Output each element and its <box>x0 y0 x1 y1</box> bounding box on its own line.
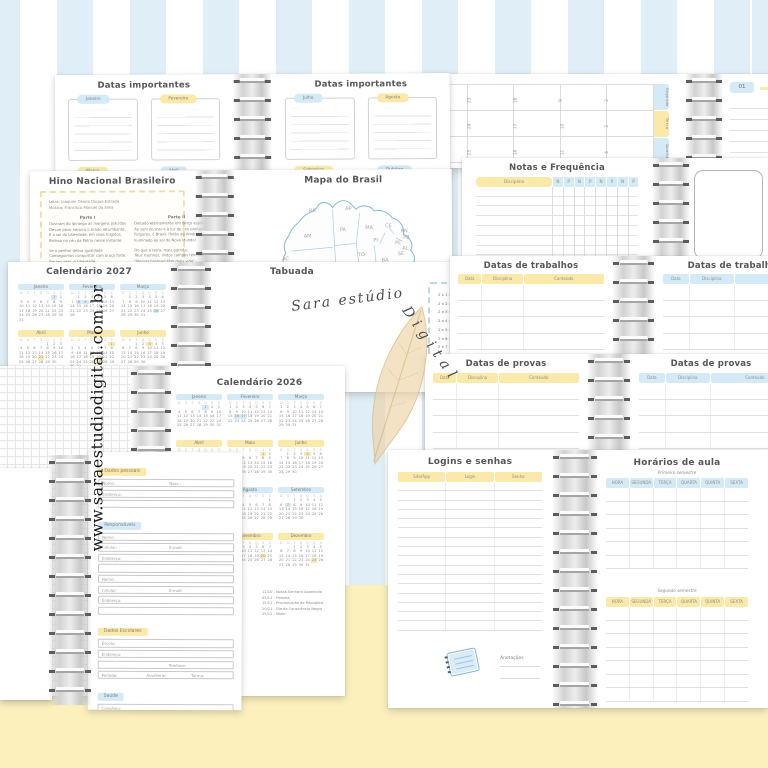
sheet-monthly-view: 3023169231241710312518114 SegundaTerçaQu… <box>412 74 768 168</box>
month-label: Agosto <box>376 93 409 102</box>
mini-calendar: JaneiroDSTQQSS12345678910111213141516171… <box>176 394 222 432</box>
state-label: AP <box>345 206 351 212</box>
spiral-binding <box>685 74 723 168</box>
table-cell <box>606 206 617 216</box>
field-label: Nome: <box>99 534 233 541</box>
table-cell <box>630 634 654 647</box>
table-cell <box>690 334 735 350</box>
table-cell <box>630 648 654 661</box>
day-cell <box>247 474 254 479</box>
field-label: Endereço: <box>99 651 233 658</box>
page-title: Datas de trabalhos <box>450 261 612 271</box>
table-cell <box>701 556 725 569</box>
mini-calendar: DezembroDSTQQSS1234567891011121314151617… <box>278 533 324 571</box>
table-cell <box>725 675 748 688</box>
table-cell <box>574 197 585 207</box>
month-boxes: JaneiroFevereiroMarçoAbril <box>68 98 221 179</box>
blank-page-left <box>0 468 52 700</box>
state-label: PI <box>373 238 378 244</box>
day-grid: 1234567891011121314151617181920212223242… <box>18 295 64 322</box>
table-cell <box>446 519 494 527</box>
table-row <box>663 334 768 351</box>
semester-label: Segundo semestre <box>606 588 748 593</box>
table-cell <box>584 216 595 226</box>
field-row: Endereço: <box>98 650 234 659</box>
month-header: Março <box>278 394 324 400</box>
day-cell <box>285 567 292 572</box>
ruled-lines <box>291 108 349 154</box>
table-cell <box>735 334 768 350</box>
weekday-tab: Segunda <box>654 84 669 110</box>
calendar-cell: 3 <box>607 111 654 137</box>
table-cell <box>552 236 563 246</box>
table-cell <box>482 317 523 333</box>
month-header: Março <box>120 284 166 290</box>
assignments-table: DataDisciplinaConteúdo <box>663 274 768 350</box>
table-cell <box>446 510 494 518</box>
table-cell <box>574 236 585 246</box>
table-row <box>398 482 542 491</box>
table-cell <box>495 612 542 620</box>
table-cell <box>476 197 552 207</box>
table-cell <box>495 491 542 499</box>
day-cell <box>247 567 254 572</box>
spiral-binding <box>587 354 631 462</box>
table-cell <box>574 187 585 197</box>
table-cell <box>398 519 446 527</box>
table-cell <box>711 416 768 432</box>
field-label: E-mail: <box>166 587 233 593</box>
table-cell <box>654 607 678 620</box>
table-cell <box>735 284 768 300</box>
month-header: Abril <box>18 330 64 336</box>
day-cell <box>209 428 216 433</box>
calendar-cell: 24 <box>468 111 515 137</box>
table-cell <box>398 612 446 620</box>
table-cell <box>433 433 457 449</box>
table-cell <box>499 383 579 399</box>
table-cell <box>457 433 498 449</box>
table-cell <box>446 482 494 490</box>
sheet-dados-pessoais: Dados pessoaisNome:Nasc.:Endereço:Respon… <box>88 452 243 711</box>
table-cell <box>495 575 542 583</box>
ruled-lines <box>156 109 214 155</box>
table-row <box>398 584 542 593</box>
page-horarios: Horários de aula Primeiro semestre HORAS… <box>598 450 768 708</box>
day-cell <box>285 521 292 526</box>
page-title: Horários de aula <box>598 458 756 468</box>
column-header: Disciplina <box>690 274 734 284</box>
table-row <box>639 383 768 400</box>
table-cell <box>666 400 711 416</box>
table-cell <box>398 575 446 583</box>
table-cell <box>606 688 630 701</box>
table-cell <box>606 226 617 236</box>
table-row <box>606 515 748 529</box>
table-cell <box>701 648 725 661</box>
table-cell <box>630 529 654 542</box>
table-row <box>433 433 579 450</box>
table-cell <box>476 216 552 226</box>
table-cell <box>595 226 606 236</box>
field-label: Ano/Série: <box>143 672 188 678</box>
table-cell <box>725 661 748 674</box>
table-cell <box>563 216 574 226</box>
table-cell <box>677 502 701 515</box>
field-row: Período:Ano/Série:Turma: <box>98 671 234 680</box>
table-cell <box>606 246 617 256</box>
state-label: CE <box>385 223 392 229</box>
table-cell <box>398 556 446 564</box>
table-cell <box>654 675 678 688</box>
table-cell <box>606 675 630 688</box>
field-label: Celular: <box>99 544 166 550</box>
table-cell <box>725 529 748 542</box>
table-cell <box>524 301 604 317</box>
table-cell <box>666 383 711 399</box>
table-cell <box>446 584 494 592</box>
column-header: Conteúdo <box>711 373 768 383</box>
table-cell <box>552 197 563 207</box>
table-cell <box>398 538 446 546</box>
table-row <box>606 502 748 516</box>
day-cell <box>25 318 32 323</box>
day-cell <box>260 474 267 479</box>
day-cell <box>153 318 160 323</box>
field-row: Nome:Nasc.: <box>98 479 234 488</box>
table-row <box>606 556 748 570</box>
day-cell <box>317 474 324 479</box>
day-number: 25 <box>467 150 472 156</box>
column-header: P <box>563 177 574 187</box>
table-cell <box>584 226 595 236</box>
table-cell <box>677 675 701 688</box>
day-number: 10 <box>560 124 565 130</box>
day-number: 16 <box>513 98 518 104</box>
table-cell <box>630 688 654 701</box>
day-grid: 1234567891011121314151617181920212223242… <box>278 452 324 479</box>
table-cell <box>654 488 678 501</box>
table-cell <box>495 621 542 629</box>
day-number-badge: 01 <box>730 82 754 93</box>
table-cell <box>499 433 579 449</box>
spiral-binding <box>612 256 655 356</box>
weekday-tabs: SegundaTerçaQuarta <box>654 84 669 165</box>
table-cell <box>584 236 595 246</box>
day-grid: 1234567891011121314151617181920212223242… <box>278 405 324 432</box>
table-cell <box>677 488 701 501</box>
column-header: P <box>628 177 639 187</box>
table-row <box>639 400 768 417</box>
column-header: QUINTA <box>701 478 724 488</box>
table-cell <box>617 246 628 256</box>
month-header: Maio <box>227 440 273 446</box>
table-cell <box>711 400 768 416</box>
table-cell <box>677 688 701 701</box>
table-row <box>663 301 768 318</box>
table-cell <box>606 648 630 661</box>
table-cell <box>495 556 542 564</box>
day-cell <box>159 318 166 323</box>
table-cell <box>457 400 498 416</box>
table-cell <box>654 661 678 674</box>
table-cell <box>711 383 768 399</box>
field-label: Endereço: <box>99 555 233 562</box>
table-cell <box>666 433 711 449</box>
table-row <box>398 603 542 612</box>
anthem-line: Conseguimos conquistar com braço forte, <box>49 254 126 260</box>
table-cell <box>574 246 585 256</box>
section-label: Dados Escolares <box>98 628 148 636</box>
table-cell <box>725 607 748 620</box>
field-label: Nome: <box>99 576 233 583</box>
day-cell <box>311 474 318 479</box>
page-title: Tabuada <box>212 267 372 277</box>
day-cell <box>298 521 305 526</box>
day-cell <box>127 318 134 323</box>
field-label: Telefone: <box>166 662 233 668</box>
table-cell <box>677 542 701 555</box>
field-row <box>98 564 234 573</box>
table-cell <box>458 284 482 300</box>
table-cell <box>606 216 617 226</box>
table-cell <box>654 529 678 542</box>
monthly-calendar-grid: 3023169231241710312518114 <box>420 84 654 163</box>
table-row <box>458 334 604 351</box>
schedule-table-sem1: HORASEGUNDATERÇAQUARTAQUINTASEXTA <box>606 478 748 569</box>
day-grid: 1234567891011121314151617181920212223242… <box>227 405 273 432</box>
table-row <box>398 621 542 630</box>
table-cell <box>654 542 678 555</box>
column-header: N <box>617 177 628 187</box>
day-cell <box>196 428 203 433</box>
table-cell <box>630 515 654 528</box>
table-cell <box>617 226 628 236</box>
month-box: Julho <box>285 97 355 159</box>
notes-box <box>694 170 763 259</box>
day-cell <box>247 428 254 433</box>
ruled-lines <box>373 108 431 154</box>
month-header: Setembro <box>278 487 324 493</box>
day-cell <box>51 318 58 323</box>
table-cell <box>398 501 446 509</box>
table-row <box>606 688 748 702</box>
table-cell <box>398 491 446 499</box>
table-cell <box>446 528 494 536</box>
table-row <box>663 317 768 334</box>
field-label <box>99 565 233 572</box>
spiral-binding <box>233 74 273 178</box>
table-cell <box>725 634 748 647</box>
table-cell <box>630 488 654 501</box>
month-header: Junho <box>278 440 324 446</box>
page-title: Datas importantes <box>55 80 233 91</box>
table-cell <box>725 488 748 501</box>
day-number: 2 <box>605 99 610 102</box>
annotations-label: Anotações <box>500 656 524 661</box>
table-cell <box>690 301 735 317</box>
table-cell <box>574 226 585 236</box>
mini-calendar: JunhoDSTQQSS1234567891011121314151617181… <box>278 440 324 478</box>
calendar-cell: 10 <box>561 111 608 137</box>
table-row <box>398 510 542 519</box>
day-number: 11 <box>560 150 565 156</box>
day-cell <box>57 318 64 323</box>
month-label: Fevereiro <box>159 94 197 103</box>
table-cell <box>628 187 639 197</box>
table-cell <box>606 236 617 246</box>
table-cell <box>482 301 523 317</box>
day-cell <box>298 567 305 572</box>
table-cell <box>711 433 768 449</box>
table-cell <box>701 529 725 542</box>
table-cell <box>617 216 628 226</box>
month-box: Fevereiro <box>150 98 220 160</box>
table-row <box>398 538 542 547</box>
table-cell <box>663 301 690 317</box>
table-row <box>606 634 748 648</box>
field-row: Convênio: <box>98 703 234 710</box>
table-row <box>398 547 542 556</box>
mini-calendar: FevereiroDSTQQSS123456789101112131415161… <box>227 394 273 432</box>
column-header: Conteúdo <box>735 274 768 284</box>
column-header: N <box>595 177 606 187</box>
table-cell <box>595 187 606 197</box>
part-title: Parte I <box>49 215 126 220</box>
field-row: Nome: <box>98 533 234 542</box>
table-cell <box>654 556 678 569</box>
table-cell <box>639 416 666 432</box>
day-cell <box>108 318 115 323</box>
table-cell <box>552 187 563 197</box>
table-cell <box>725 556 748 569</box>
field-row: Endereço: <box>98 596 234 605</box>
table-cell <box>630 607 654 620</box>
watermark-site-url: www.saraestudiodigital.com.br <box>88 285 107 552</box>
table-cell <box>495 603 542 611</box>
field-row: Celular:E-mail: <box>98 585 234 594</box>
table-cell <box>563 246 574 256</box>
table-row <box>606 621 748 635</box>
table-cell <box>701 488 725 501</box>
field-label <box>99 608 233 615</box>
table-cell <box>701 621 725 634</box>
table-row <box>606 675 748 689</box>
table-cell <box>552 226 563 236</box>
day-cell <box>311 521 318 526</box>
column-header: HORA <box>606 597 629 607</box>
table-row <box>458 301 604 318</box>
day-number: 18 <box>513 150 518 156</box>
day-number: 3 <box>605 125 610 128</box>
table-cell <box>476 206 552 216</box>
page-title: Datas de provas <box>631 359 768 369</box>
table-cell <box>398 547 446 555</box>
table-cell <box>524 284 604 300</box>
table-cell <box>595 206 606 216</box>
column-header: SEGUNDA <box>630 478 653 488</box>
table-cell <box>524 317 604 333</box>
table-row <box>398 566 542 575</box>
highlight-line <box>760 87 768 90</box>
month-label: Julho <box>294 94 323 103</box>
table-cell <box>606 488 630 501</box>
day-number: 4 <box>605 151 610 154</box>
page-datas-importantes-left: Datas importantes JaneiroFevereiroMarçoA… <box>55 74 234 179</box>
table-cell <box>690 317 735 333</box>
page-title: Notas e Frequência <box>462 163 652 173</box>
state-label: TO <box>357 252 365 258</box>
table-cell <box>725 688 748 701</box>
table-cell <box>552 246 563 256</box>
column-header: TERÇA <box>654 478 677 488</box>
field-label: Convênio: <box>99 704 233 710</box>
field-row: Escola: <box>98 639 234 648</box>
table-cell <box>606 621 630 634</box>
table-cell <box>457 383 498 399</box>
field-label: E-mail: <box>166 544 233 550</box>
table-row <box>433 416 579 433</box>
table-row <box>606 661 748 675</box>
table-cell <box>654 621 678 634</box>
table-cell <box>563 206 574 216</box>
table-cell <box>677 621 701 634</box>
field-row: Endereço: <box>98 554 234 563</box>
table-cell <box>398 528 446 536</box>
table-cell <box>677 634 701 647</box>
table-cell <box>690 284 735 300</box>
table-cell <box>725 502 748 515</box>
table-cell <box>630 542 654 555</box>
table-cell <box>495 584 542 592</box>
column-header: SEXTA <box>725 597 748 607</box>
day-cell <box>266 567 273 572</box>
table-cell <box>574 206 585 216</box>
table-cell <box>476 187 552 197</box>
page-title: Calendário 2026 <box>174 378 345 388</box>
column-header: P <box>584 177 595 187</box>
table-cell <box>398 594 446 602</box>
page-title: Mapa do Brasil <box>235 175 452 186</box>
day-cell <box>260 521 267 526</box>
table-cell <box>725 648 748 661</box>
day-cell <box>266 428 273 433</box>
table-cell <box>584 197 595 207</box>
field-row <box>98 500 234 509</box>
table-cell <box>701 661 725 674</box>
day-cell <box>247 521 254 526</box>
table-header: HORASEGUNDATERÇAQUARTAQUINTASEXTA <box>606 478 748 488</box>
month-header: Fevereiro <box>227 394 273 400</box>
table-cell <box>446 547 494 555</box>
calendar-cell: 9 <box>561 85 608 111</box>
table-row <box>639 433 768 450</box>
state-label: RR <box>309 208 316 214</box>
holiday-item: 25/12 - Natal <box>262 612 338 618</box>
month-header: Dezembro <box>278 533 324 539</box>
mini-calendar: JaneiroDSTQQSS12345678910111213141516171… <box>18 284 64 322</box>
table-cell <box>617 187 628 197</box>
table-cell <box>584 206 595 216</box>
table-row <box>398 528 542 537</box>
day-number: 24 <box>467 124 472 130</box>
table-cell <box>725 621 748 634</box>
state-label: PE <box>395 240 401 246</box>
table-cell <box>446 612 494 620</box>
column-header: P <box>606 177 617 187</box>
table-cell <box>701 634 725 647</box>
table-cell <box>398 603 446 611</box>
